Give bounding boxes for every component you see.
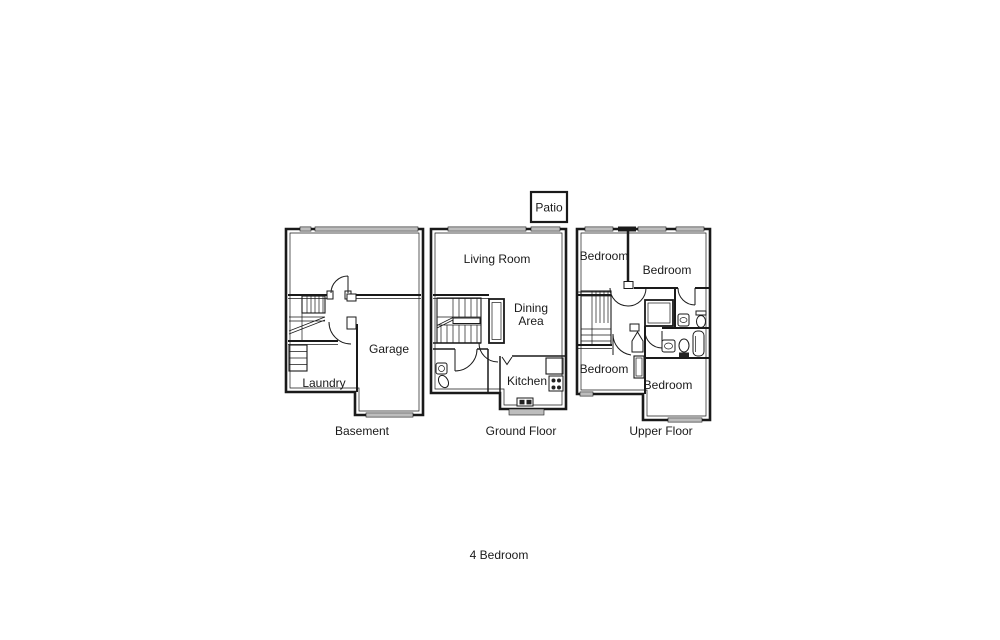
floor-caption-upper: Upper Floor	[629, 424, 692, 438]
door-jamb	[630, 324, 639, 331]
closet-outline	[645, 300, 673, 326]
bathtub-icon	[693, 331, 704, 356]
floor-plan-drawing: Garage Laundry Basement Patio	[0, 0, 1000, 640]
sink-basin	[527, 400, 532, 405]
floor-caption-ground: Ground Floor	[486, 424, 557, 438]
room-label-laundry: Laundry	[302, 376, 345, 390]
burner	[557, 386, 561, 390]
toilet-bowl	[679, 339, 689, 352]
basement-plan: Garage Laundry Basement	[286, 227, 423, 438]
toilet-tank	[436, 363, 447, 374]
plan-summary-caption: 4 Bedroom	[470, 548, 529, 562]
burner	[552, 379, 556, 383]
window-marker	[580, 392, 593, 396]
stove-body	[549, 376, 563, 391]
upper-floor-plan: Bedroom Bedroom Bedroom Bedroom Upper Fl…	[577, 227, 710, 439]
window-marker	[668, 418, 702, 422]
patio-box: Patio	[531, 192, 567, 222]
toilet-icon	[679, 339, 689, 357]
patio-label: Patio	[535, 201, 563, 215]
garage-door-marker	[366, 413, 413, 417]
room-label-bedroom-top-right: Bedroom	[643, 263, 692, 277]
door-jamb	[347, 294, 356, 301]
room-label-bedroom-bottom-left: Bedroom	[580, 362, 629, 376]
toilet-bowl	[697, 316, 706, 328]
window-marker	[448, 227, 526, 231]
sink-icon	[662, 340, 675, 352]
window-marker	[638, 227, 666, 231]
stairs-rail	[453, 318, 480, 324]
floor-caption-basement: Basement	[335, 424, 390, 438]
room-label-living-room: Living Room	[464, 252, 531, 266]
wall-tab	[624, 282, 633, 289]
toilet-base	[679, 353, 689, 358]
door-jamb	[347, 317, 356, 329]
room-label-garage: Garage	[369, 342, 409, 356]
sink-basin	[520, 400, 525, 405]
room-label-dining-line1: Dining	[514, 301, 548, 315]
closet-outline	[489, 299, 504, 343]
toilet-tank	[696, 311, 706, 315]
chimney-closet	[489, 299, 504, 343]
window-marker	[585, 227, 613, 231]
room-label-kitchen: Kitchen	[507, 374, 547, 388]
sink-icon	[678, 314, 689, 326]
room-label-dining-line2: Area	[518, 314, 544, 328]
toilet-icon	[696, 311, 706, 328]
window-marker	[315, 227, 418, 231]
floor-plan-page: Garage Laundry Basement Patio	[0, 0, 1000, 640]
sink-body	[662, 340, 675, 352]
burner	[557, 379, 561, 383]
patio-door-step	[509, 409, 544, 415]
stove-icon	[549, 376, 563, 391]
window-marker	[300, 227, 311, 231]
burner	[552, 386, 556, 390]
room-label-bedroom-bottom-right: Bedroom	[644, 378, 693, 392]
wall-block	[618, 227, 636, 232]
ground-floor-plan: Patio	[431, 192, 567, 438]
door-jamb	[327, 291, 333, 299]
tub-body	[693, 331, 704, 356]
kitchen-sink-icon	[517, 398, 533, 406]
walk-in-closet	[645, 300, 673, 326]
window-marker	[676, 227, 704, 231]
room-label-bedroom-top-left: Bedroom	[580, 249, 629, 263]
window-marker	[531, 227, 560, 231]
